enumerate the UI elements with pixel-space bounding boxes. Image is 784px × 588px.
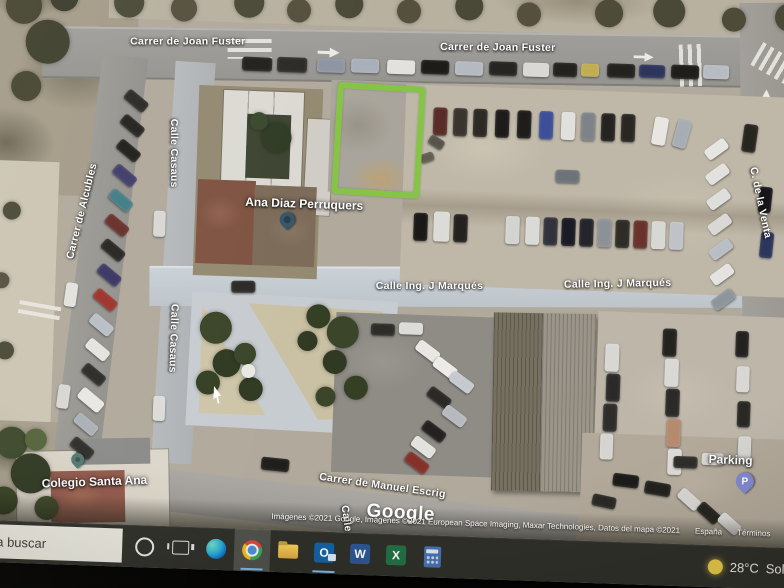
car — [261, 457, 290, 473]
car — [705, 187, 731, 211]
car — [607, 63, 635, 78]
excel-icon: X — [386, 545, 407, 566]
word-button[interactable]: W — [341, 532, 378, 575]
edge-icon — [206, 539, 227, 560]
cortana-icon — [134, 537, 154, 557]
car — [505, 216, 520, 244]
word-icon: W — [350, 544, 371, 565]
folder-icon — [278, 544, 298, 559]
word-letter: W — [354, 547, 366, 561]
car — [602, 403, 617, 431]
car — [612, 473, 639, 489]
car — [741, 123, 759, 153]
car — [543, 217, 558, 245]
calculator-button[interactable] — [413, 535, 450, 578]
car — [735, 331, 749, 357]
car — [76, 386, 105, 413]
car — [662, 328, 677, 356]
street-label-joan-fuster-1: Carrer de Joan Fuster — [130, 36, 245, 48]
task-view-icon — [171, 540, 188, 555]
car — [606, 373, 621, 401]
car — [621, 114, 636, 142]
chrome-button[interactable] — [233, 529, 270, 572]
car — [441, 404, 468, 429]
edge-button[interactable] — [197, 527, 234, 570]
car — [581, 112, 596, 140]
file-explorer-button[interactable] — [269, 530, 306, 573]
outlook-icon: O — [314, 542, 335, 563]
car — [317, 58, 345, 73]
car — [597, 219, 612, 247]
task-view-button[interactable] — [161, 526, 198, 569]
car — [525, 217, 540, 245]
highlight-rectangle — [331, 82, 426, 199]
car — [615, 220, 630, 248]
street-label-marques-1: Calle Ing. J Marqués — [376, 280, 484, 292]
car — [601, 113, 616, 141]
car — [72, 412, 99, 437]
car — [387, 60, 415, 75]
car — [433, 107, 448, 135]
car — [495, 109, 510, 137]
monitor-photo: Carrer de Joan Fuster Carrer de Joan Fus… — [0, 0, 784, 588]
car — [433, 211, 450, 242]
car — [351, 58, 379, 73]
car — [704, 162, 730, 186]
excel-button[interactable]: X — [377, 534, 414, 577]
car — [561, 112, 576, 140]
parking-pin-letter: P — [736, 472, 755, 491]
car — [665, 389, 680, 417]
car — [455, 61, 483, 76]
car — [591, 493, 617, 510]
car — [673, 456, 697, 469]
car — [448, 370, 475, 395]
street-label-casaus-2: Calle Casaus — [166, 304, 180, 373]
car — [671, 65, 699, 80]
car — [277, 57, 308, 73]
car — [421, 60, 449, 75]
car — [88, 312, 115, 337]
car — [605, 343, 620, 371]
car — [579, 218, 594, 246]
car — [736, 366, 750, 392]
car — [115, 138, 142, 163]
car — [666, 419, 681, 447]
car — [489, 61, 517, 76]
car — [371, 323, 395, 336]
car — [664, 358, 679, 386]
calculator-icon — [423, 546, 441, 568]
car — [737, 401, 751, 427]
search-text: a buscar — [0, 534, 46, 551]
sun-icon — [708, 559, 724, 575]
car — [644, 480, 672, 497]
street-label-casaus-1: Calle Casaus — [168, 119, 180, 188]
weather-condition: Sole — [766, 561, 784, 577]
car — [413, 213, 428, 241]
car — [639, 64, 665, 78]
car — [473, 109, 488, 137]
satellite-map[interactable]: Carrer de Joan Fuster Carrer de Joan Fus… — [0, 0, 784, 548]
cortana-button[interactable] — [125, 525, 162, 568]
car — [707, 212, 733, 236]
car — [703, 65, 729, 80]
attribution-terms-link[interactable]: Términos — [737, 528, 771, 538]
car — [669, 222, 684, 250]
car — [710, 288, 736, 312]
weather-widget[interactable]: 28°C Sole — [707, 545, 784, 588]
street-label-joan-fuster-2: Carrer de Joan Fuster — [440, 41, 556, 54]
taskbar-search-input[interactable]: a buscar — [0, 523, 123, 562]
weather-temp: 28°C — [730, 559, 760, 575]
car — [427, 134, 446, 151]
car — [103, 213, 130, 238]
chrome-icon — [242, 540, 263, 561]
car — [651, 221, 666, 249]
street-label-marques-2: Calle Ing. J Marqués — [564, 277, 672, 291]
outlook-button[interactable]: O — [305, 531, 342, 574]
car — [100, 238, 127, 263]
attribution-region-link[interactable]: España — [695, 527, 722, 537]
car — [242, 57, 272, 72]
cars-layer — [0, 0, 784, 548]
car — [63, 282, 78, 307]
car — [581, 63, 599, 77]
screen: Carrer de Joan Fuster Carrer de Joan Fus… — [0, 0, 784, 588]
car — [555, 170, 579, 184]
car — [453, 214, 468, 242]
car — [96, 262, 123, 287]
car — [153, 211, 166, 237]
outlook-letter: O — [319, 546, 329, 560]
car — [80, 362, 107, 387]
car — [709, 263, 735, 287]
car — [703, 137, 729, 161]
car — [600, 433, 614, 459]
car — [92, 287, 119, 312]
car — [453, 108, 468, 136]
car — [107, 188, 134, 213]
poi-label-parking[interactable]: Parking — [708, 452, 752, 468]
car — [56, 384, 71, 409]
car — [111, 163, 138, 188]
car — [84, 337, 111, 362]
car — [539, 111, 554, 139]
car — [517, 110, 532, 138]
car — [671, 119, 692, 150]
excel-letter: X — [392, 548, 400, 562]
car — [523, 62, 549, 77]
car — [633, 220, 648, 248]
car — [399, 322, 423, 335]
car — [119, 113, 146, 138]
car — [708, 237, 734, 261]
car — [231, 281, 255, 293]
car — [651, 116, 670, 146]
car — [153, 396, 166, 421]
car — [123, 88, 150, 113]
car — [561, 218, 576, 246]
car — [553, 62, 577, 77]
